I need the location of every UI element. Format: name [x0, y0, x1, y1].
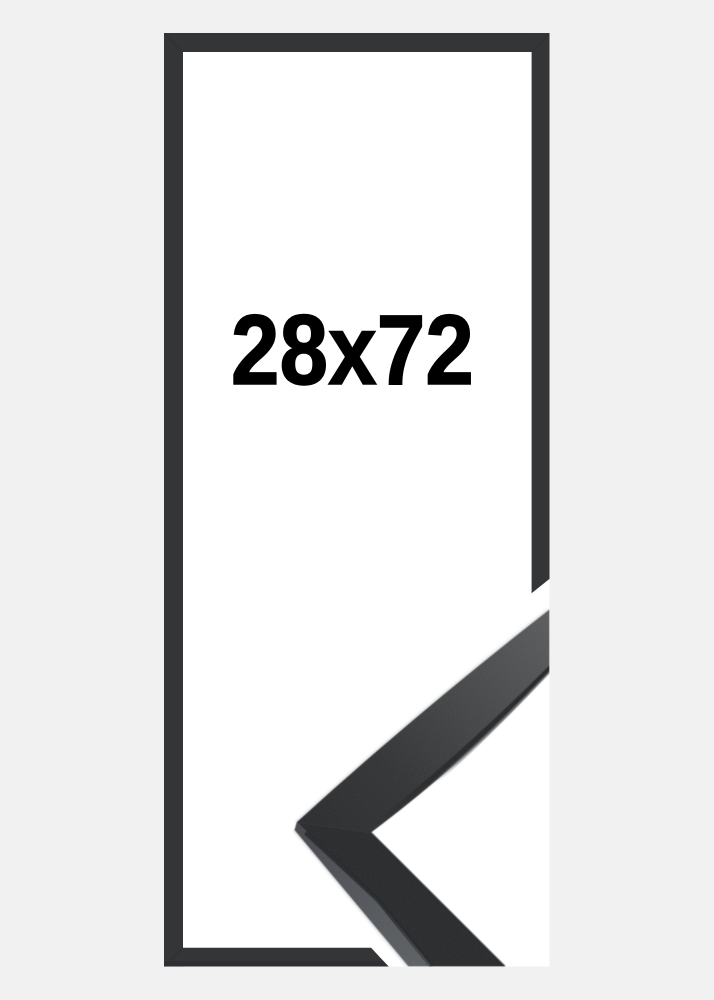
svg-text:28x72: 28x72: [231, 295, 474, 406]
